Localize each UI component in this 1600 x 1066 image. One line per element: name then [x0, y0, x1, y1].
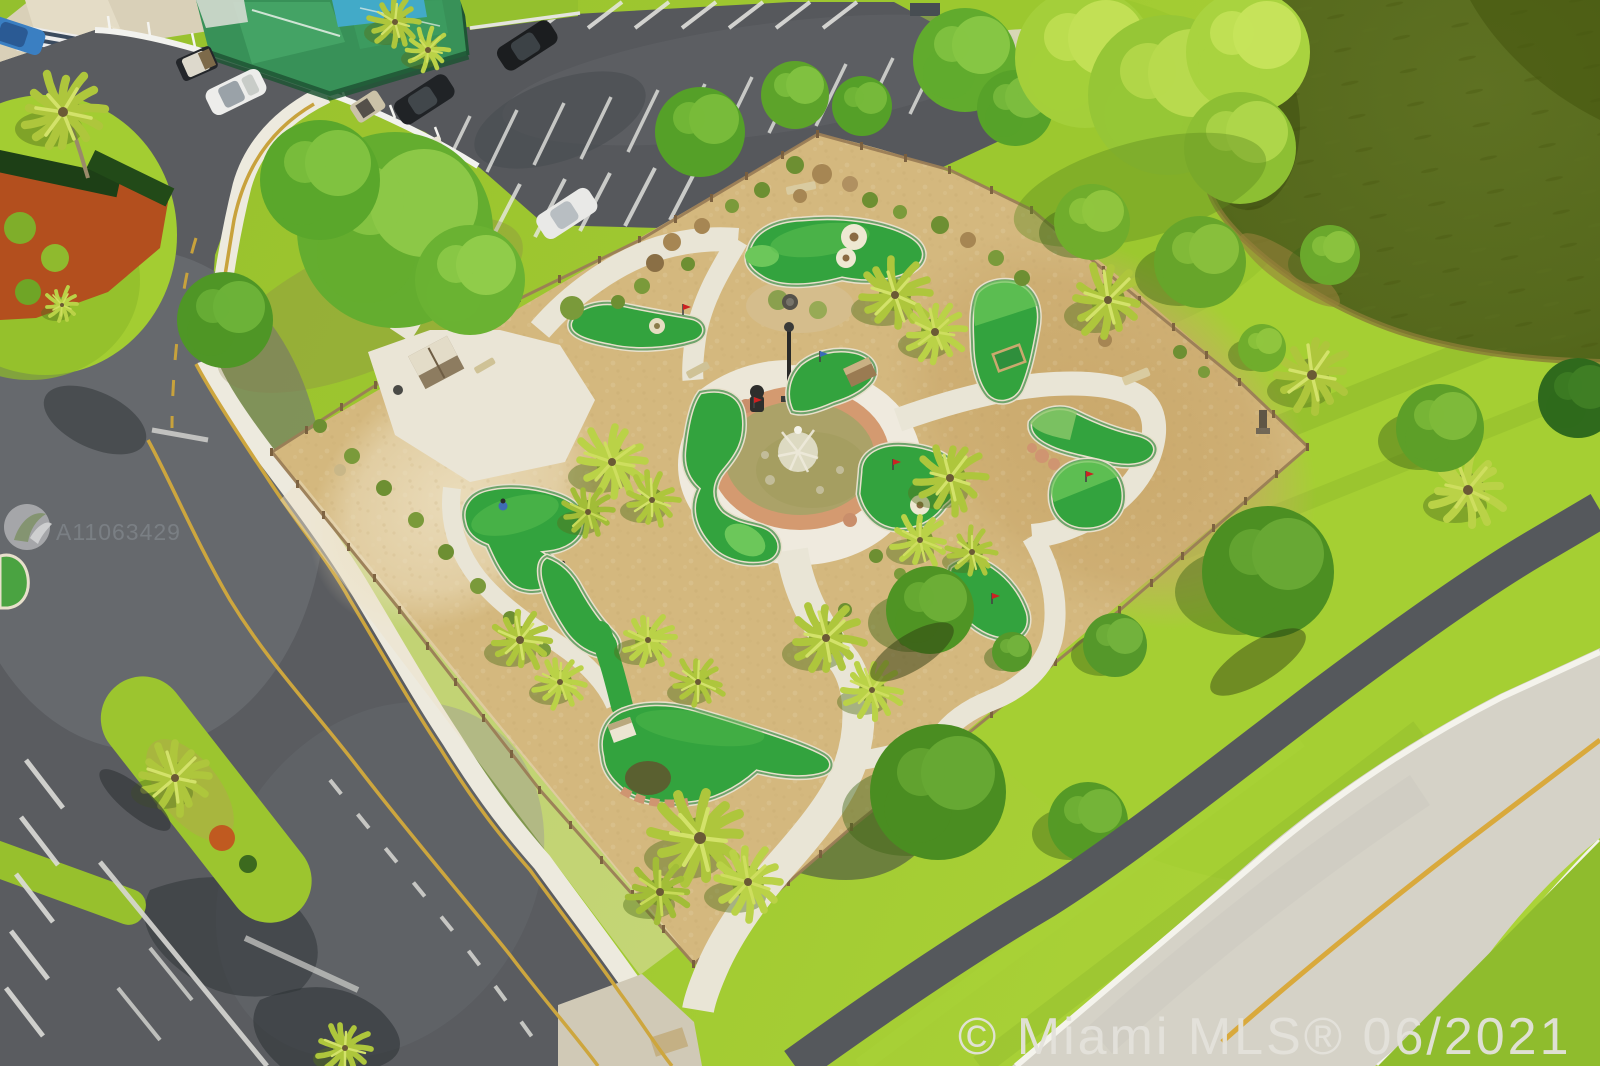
svg-text:A11063429: A11063429 — [56, 519, 181, 545]
svg-text:© Miami MLS® 06/2021: © Miami MLS® 06/2021 — [958, 1008, 1572, 1066]
